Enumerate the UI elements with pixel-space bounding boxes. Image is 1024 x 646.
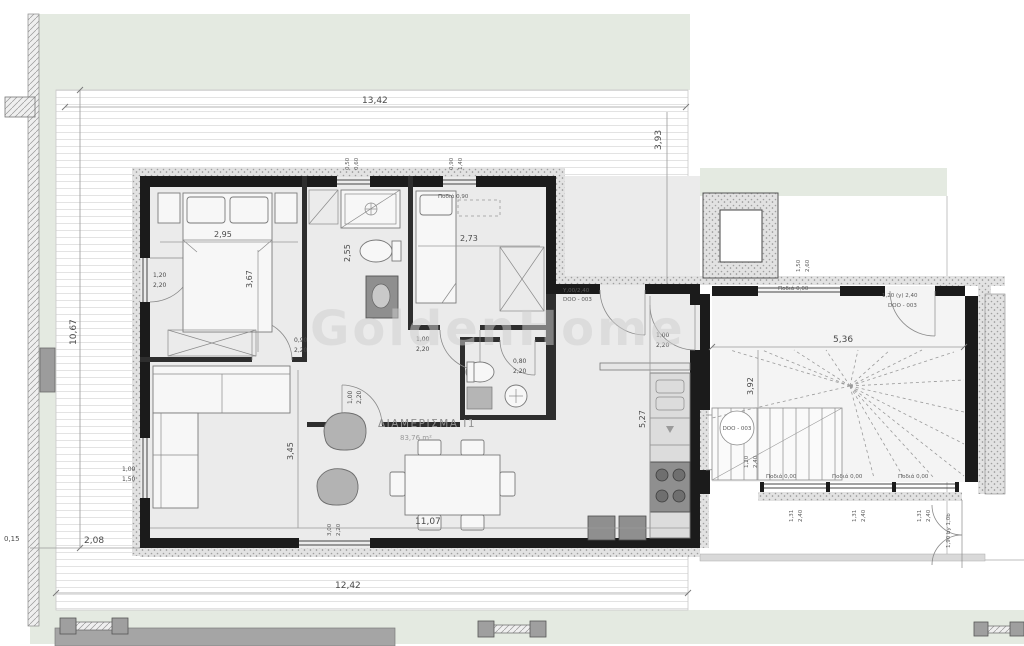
dim-stair-width: 5,36 [833,335,853,345]
wall [700,294,710,410]
wall [478,176,556,187]
dim-top-terrace-depth: 3,93 [654,130,664,150]
wc-mat [467,387,492,409]
bench-leg [112,618,128,634]
label-bed1-door-h: 2,20 [294,347,308,354]
label-entry-door-h: 2,40 [753,455,759,468]
wall [645,284,700,294]
wall [840,286,885,296]
label-bath-window-h: 0,60 [354,157,360,170]
sill-note: Ποδιά 0,00 [832,473,863,480]
wall [140,176,150,258]
wall [690,350,700,548]
label-living-slider-w: 3,00 [327,523,333,536]
label-bed1-window-h: 2,20 [153,282,167,289]
label-bed2-window-w: 0,90 [449,157,455,170]
label-bed1-door-w: 0,90 [294,337,308,344]
single-bed [416,191,456,303]
bench-leg [60,618,76,634]
terrace-edge [700,554,985,561]
bench-bar [492,625,534,633]
hall-door-tag: Υ,00/2,40 [562,288,590,294]
wall [372,538,700,548]
label-bed2-window-h: 1,40 [458,157,464,170]
kitchen-bar [600,363,690,370]
dim-top-width: 13,42 [362,96,388,106]
label-wc-door-w: 0,80 [513,358,527,365]
label-living-window-w: 1,00 [122,466,136,473]
dim-bottom-width: 12,42 [335,581,361,591]
label-bath-window-w: 0,50 [345,157,351,170]
lawn-top [30,14,690,90]
wall [965,296,978,482]
dim-left-height: 10,67 [69,319,79,345]
sill-note: Ποδιά 0,00 [778,285,809,292]
dim-bed1-width: 2,95 [214,230,232,239]
door-code: DOO - 003 [723,426,752,432]
insulation [935,276,1005,286]
wall [546,176,556,294]
dim-bed2-width: 2,73 [460,234,478,243]
shaft [703,193,778,278]
insulation [132,176,141,556]
wall [712,286,758,296]
floor-plan-drawing: 13,42 3,93 10,67 2,08 0,15 12,42 11,07 3… [0,0,1024,646]
bench-leg [530,621,546,637]
bench-bar [76,622,116,630]
label-stair-window-h: 2,40 [926,509,932,522]
label-stair-window-h: 2,40 [861,509,867,522]
dim-bath-height: 2,55 [343,244,352,262]
walkway [55,628,395,646]
toilet [360,240,401,262]
apartment-title: ΔΙΑΜΕΡΙΣΜΑ Ι1 [378,418,476,430]
label-bath-door-w: 1,00 [347,390,354,404]
dim-interior-width: 11,07 [415,517,441,527]
stove [650,462,690,512]
sill-note: Ποδιά 0,00 [898,473,929,480]
label-stair-window-w: 1,31 [852,510,858,522]
label-upper-window-w: 1,50 [796,259,802,272]
bench-leg [1010,622,1024,636]
label-bed1-window-w: 1,20 [153,272,167,279]
dim-bed1-height: 3,67 [245,270,254,288]
floor-plan: 13,42 3,93 10,67 2,08 0,15 12,42 11,07 3… [0,0,1024,646]
wall [700,470,710,494]
bench-leg [478,621,494,637]
lawn-upper-right [700,168,947,196]
dim-living-height: 3,45 [286,442,295,460]
sill-note: Ποδιά 0,00 [766,473,797,480]
wall [372,176,442,187]
dim-stair-height: 3,92 [746,377,755,395]
door-code-bubble: DOO - 003 [720,411,754,445]
boundary-post [5,97,35,117]
label-stair-window-w: 1,31 [789,510,795,522]
shaft-core [720,210,762,262]
insulation [556,168,565,280]
partition [302,176,307,362]
partition [292,357,307,362]
door-code: DOO - 003 [888,303,917,309]
stair-door-tag: 1,20 (y) 2,40 [882,293,918,299]
dim-left-setback: 2,08 [84,536,104,546]
label-wc-door-h: 2,20 [513,368,527,375]
insulation [132,168,556,177]
sill-note-high: Ποδιά 0,90 [438,193,469,200]
insulation [140,548,700,557]
wall [140,538,298,548]
apartment-area: 83,76 m² [400,434,432,442]
dim-left-offset: 0,15 [4,535,20,543]
label-stair-window-w: 1,31 [917,510,923,522]
neighbor-wall [985,294,1005,494]
gate-note: 1,90 by 1,0b [946,513,952,548]
label-stair-window-h: 2,40 [798,509,804,522]
shower [341,190,400,228]
wall [140,302,150,438]
label-living-window-h: 1,50 [122,476,136,483]
wall [690,294,700,305]
watermark: GoldenHome [310,301,686,357]
label-upper-window-h: 2,60 [805,259,811,272]
insulation [758,492,962,501]
dim-kitchen-height: 5,27 [638,410,647,428]
planter [40,348,55,392]
bench-leg [974,622,988,636]
wall [935,286,965,296]
label-entry-door-w: 1,20 [744,455,750,468]
partition [140,357,252,362]
label-living-slider-h: 2,20 [336,523,342,536]
label-bath-door-h: 2,20 [356,390,363,404]
